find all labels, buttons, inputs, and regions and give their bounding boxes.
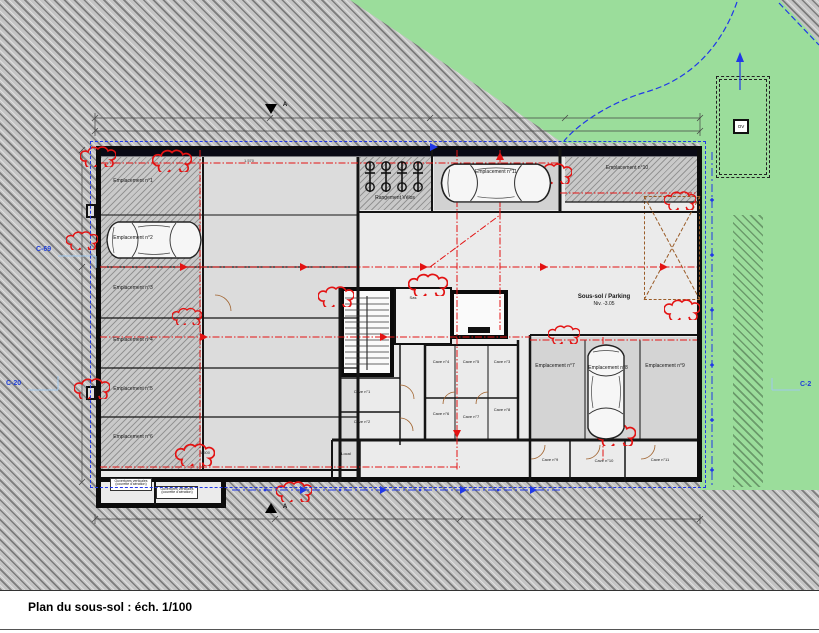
section-marker-letter: A [279,102,291,109]
property-limit-line [90,141,706,488]
caption-underline [0,629,819,630]
boundary-label-c20: C-20 [6,380,21,387]
section-marker-letter: A [279,504,291,511]
basement-floor-plan: OV [0,0,819,633]
boundary-label-c69: C-69 [36,246,51,253]
plan-caption: Plan du sous-sol : éch. 1/100 [28,600,192,614]
boundary-label-c2: C-2 [800,381,811,388]
